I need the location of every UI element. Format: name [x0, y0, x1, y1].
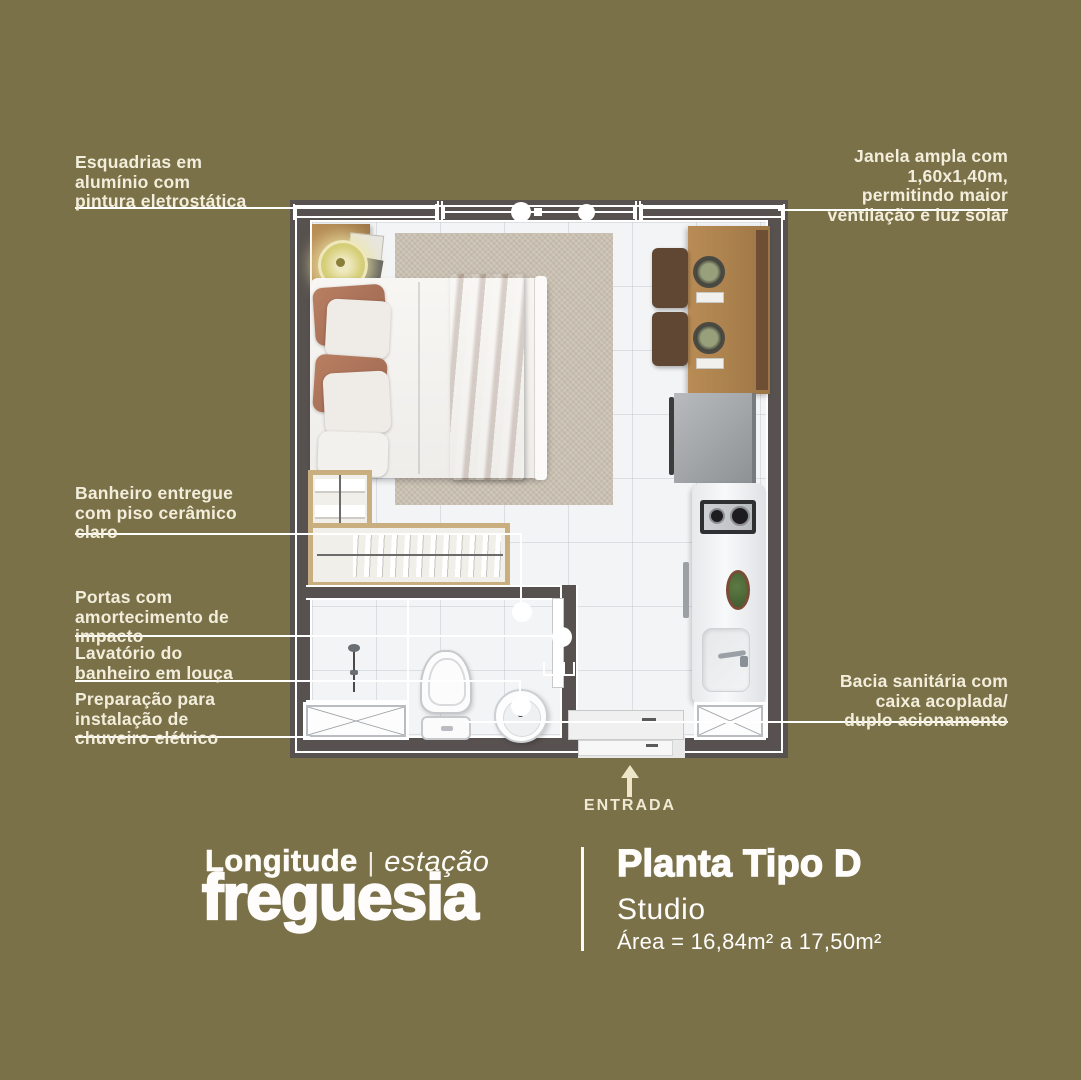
shaft-box-left: [306, 705, 406, 737]
label-janela: Janela ampla com 1,60x1,40m, permitindo …: [770, 147, 1008, 225]
napkin-1: [696, 292, 724, 303]
pillow-white-1: [325, 298, 392, 359]
shower-divider-line-2: [306, 700, 409, 702]
window-left-frame: [293, 207, 437, 209]
plan-area: Área = 16,84m² a 17,50m²: [617, 929, 882, 955]
entrance-door-leaf: [568, 710, 684, 740]
toilet-bowl: [420, 650, 472, 714]
table-dark-edge: [756, 230, 768, 390]
brand-divider-line: [581, 847, 584, 951]
label-banheiro: Banheiro entregue com piso cerâmico clar…: [75, 484, 305, 543]
napkin-2: [696, 358, 724, 369]
entrance-arrow-shaft: [627, 777, 632, 797]
toilet-seat: [428, 658, 466, 706]
window-mid-cap-1: [443, 205, 445, 219]
faucet-handle: [740, 656, 748, 667]
label-portas: Portas com amortecimento de impacto: [75, 588, 305, 647]
label-lavatorio: Lavatório do banheiro em louça: [75, 644, 305, 683]
floorplan-poster: Esquadrias em alumínio com pintura eletr…: [0, 0, 1081, 1080]
label-preparacao: Preparação para instalação de chuveiro e…: [75, 690, 305, 749]
label-bacia: Bacia sanitária com caixa acoplada/ dupl…: [770, 672, 1008, 731]
label-esquadrias: Esquadrias em alumínio com pintura eletr…: [75, 153, 300, 212]
place-setting-1: [693, 256, 725, 288]
shower-mixer: [350, 670, 358, 675]
plant: [726, 570, 750, 610]
burner-large: [730, 506, 750, 526]
burner-small: [709, 508, 725, 524]
callout-line-banheiro-v: [520, 533, 522, 606]
window-pivot-2: [578, 204, 595, 221]
mullion-2a: [635, 201, 637, 221]
window-latch: [534, 208, 542, 216]
duvet-fold: [418, 282, 420, 474]
door-frame-mark-2: [563, 662, 575, 676]
window-left-frame-2: [293, 216, 437, 218]
flush-button: [441, 726, 453, 731]
lamp-finial: [336, 258, 345, 267]
entrance-label: ENTRADA: [572, 797, 688, 815]
bed: [310, 276, 546, 480]
door-frame-mark-1: [543, 662, 555, 676]
shower-divider-line: [407, 600, 409, 702]
bathroom-top-wall: [306, 585, 578, 600]
place-setting-2: [693, 322, 725, 354]
bed-footboard: [534, 276, 547, 480]
callout-dot-portas: [552, 627, 572, 647]
door-handle-2: [646, 744, 658, 747]
chair-2: [652, 312, 688, 366]
window-pivot-1: [511, 202, 531, 222]
toilet-tank: [421, 716, 471, 740]
pillow-white-2: [322, 370, 391, 435]
bed-blanket: [450, 274, 524, 480]
floor-plan: [290, 200, 788, 758]
window-right-frame: [641, 207, 785, 209]
window-right-frame-2: [641, 216, 785, 218]
entrance-threshold: [578, 740, 673, 756]
chair-1: [652, 248, 688, 308]
utensil-rail: [683, 562, 689, 618]
shower-head: [348, 644, 360, 652]
closet-rod-horizontal: [317, 554, 503, 556]
callout-dot-lavatorio: [511, 696, 531, 716]
window-right-cap-1: [641, 204, 643, 220]
refrigerator: [674, 393, 756, 483]
refrigerator-handle: [669, 397, 674, 475]
plan-subtitle: Studio: [617, 893, 706, 927]
plan-title: Planta Tipo D: [617, 843, 862, 886]
mullion-1a: [437, 201, 439, 221]
brand-project-name: freguesia: [202, 860, 478, 934]
callout-dot-banheiro: [512, 602, 532, 622]
